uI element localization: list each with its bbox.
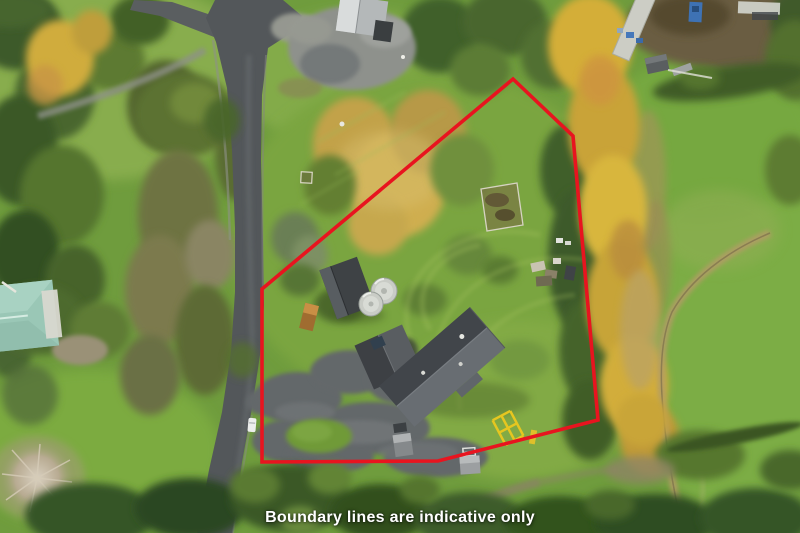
aerial-photo-frame: Boundary lines are indicative only [0,0,800,533]
small-animal-pen [301,172,313,184]
white-car [247,418,256,433]
aerial-photo [0,0,800,533]
blue-tractor [688,2,702,23]
garden-beds [481,183,523,231]
teal-roof-house [0,279,63,354]
